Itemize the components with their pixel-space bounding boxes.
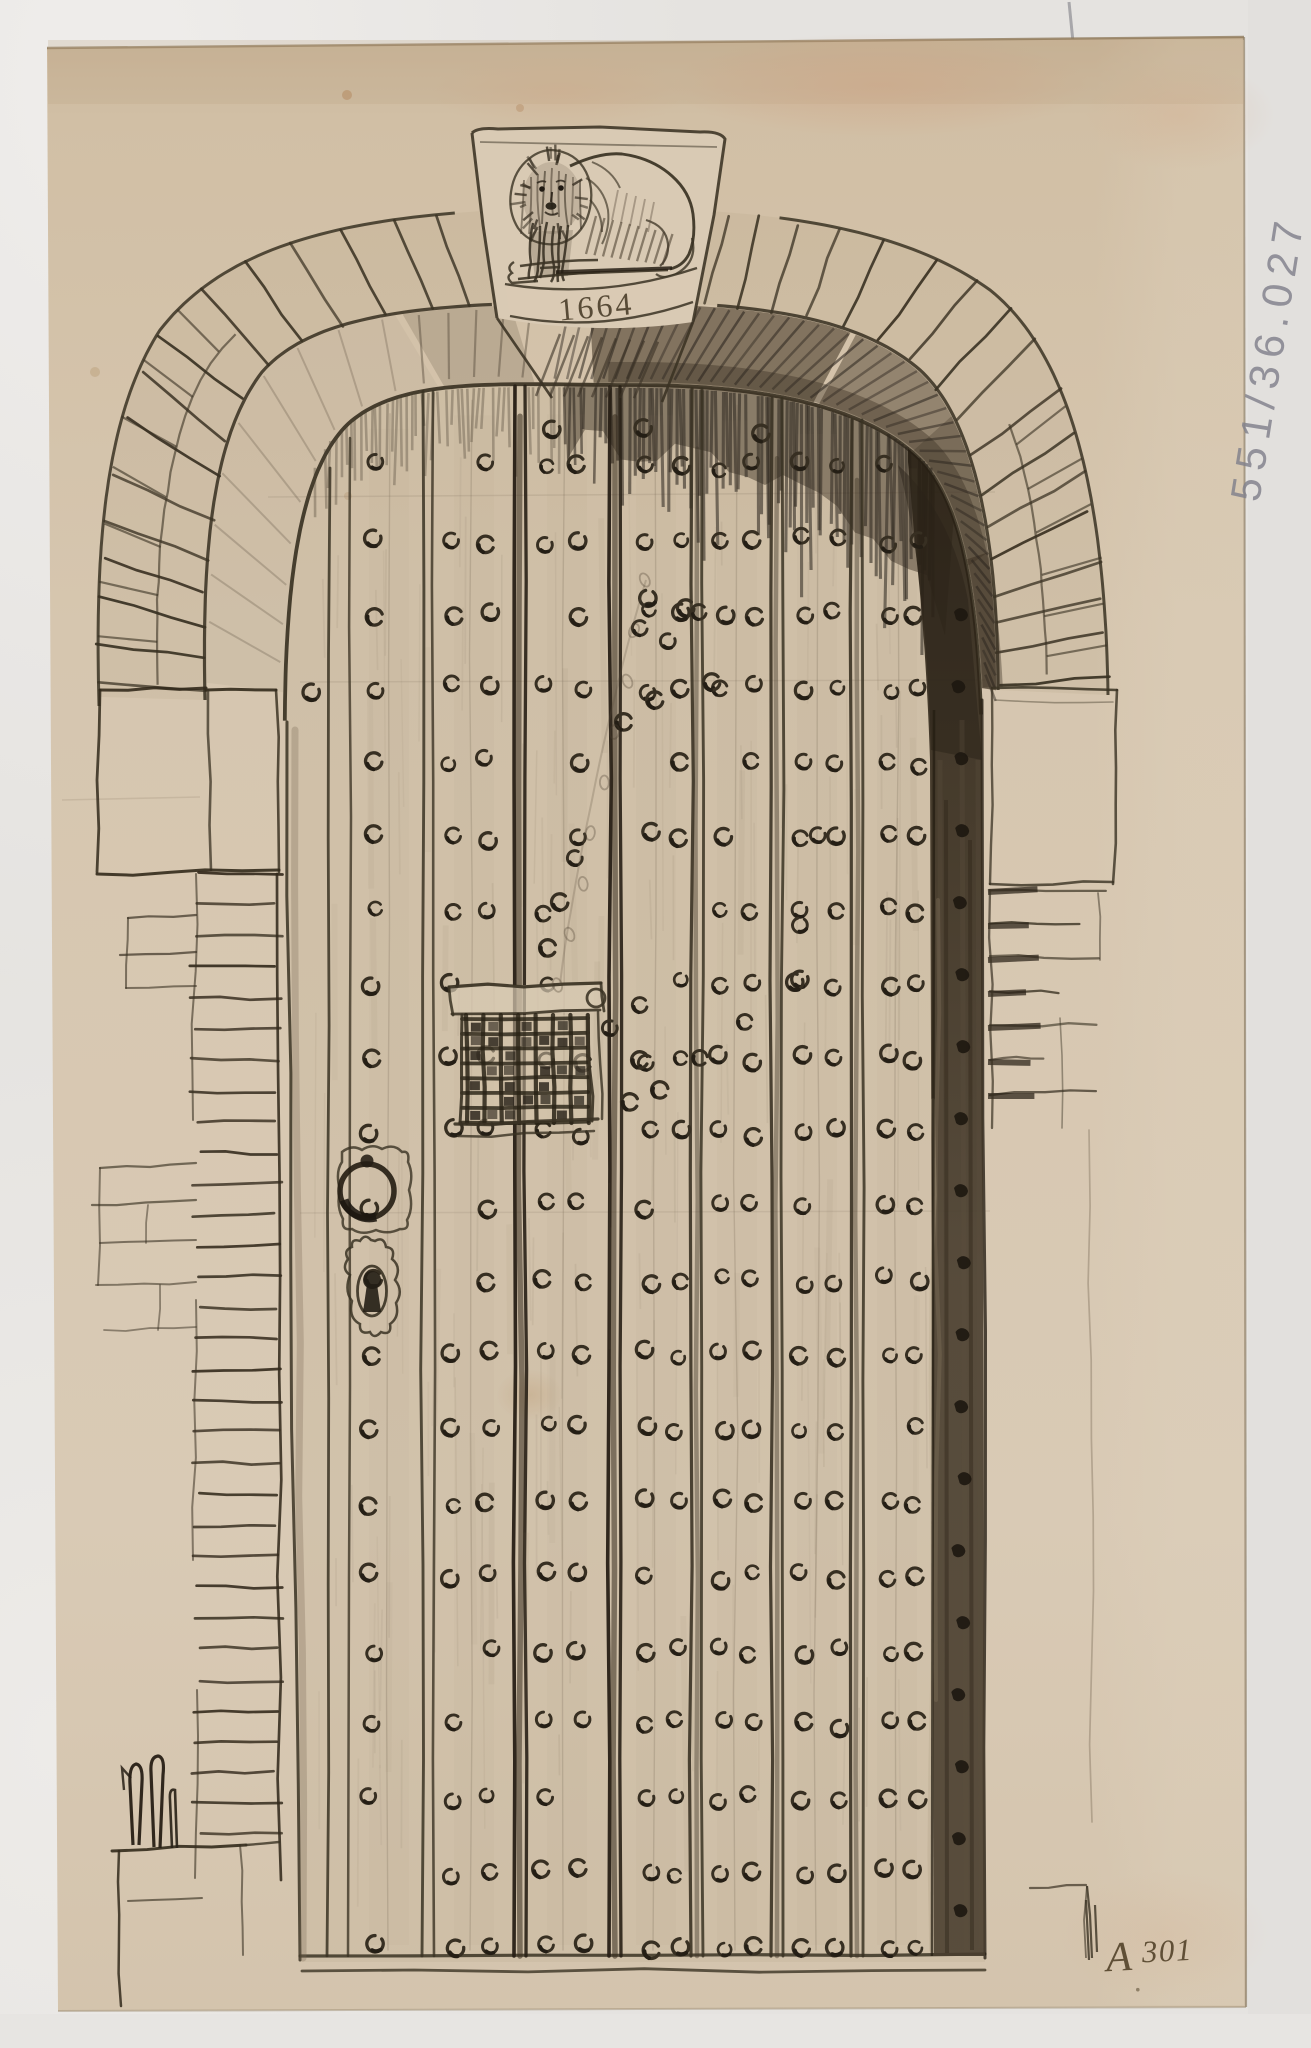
svg-text:301: 301 [1140, 1932, 1194, 1970]
svg-text:A: A [1102, 1934, 1133, 1981]
svg-text:1664: 1664 [557, 285, 636, 327]
